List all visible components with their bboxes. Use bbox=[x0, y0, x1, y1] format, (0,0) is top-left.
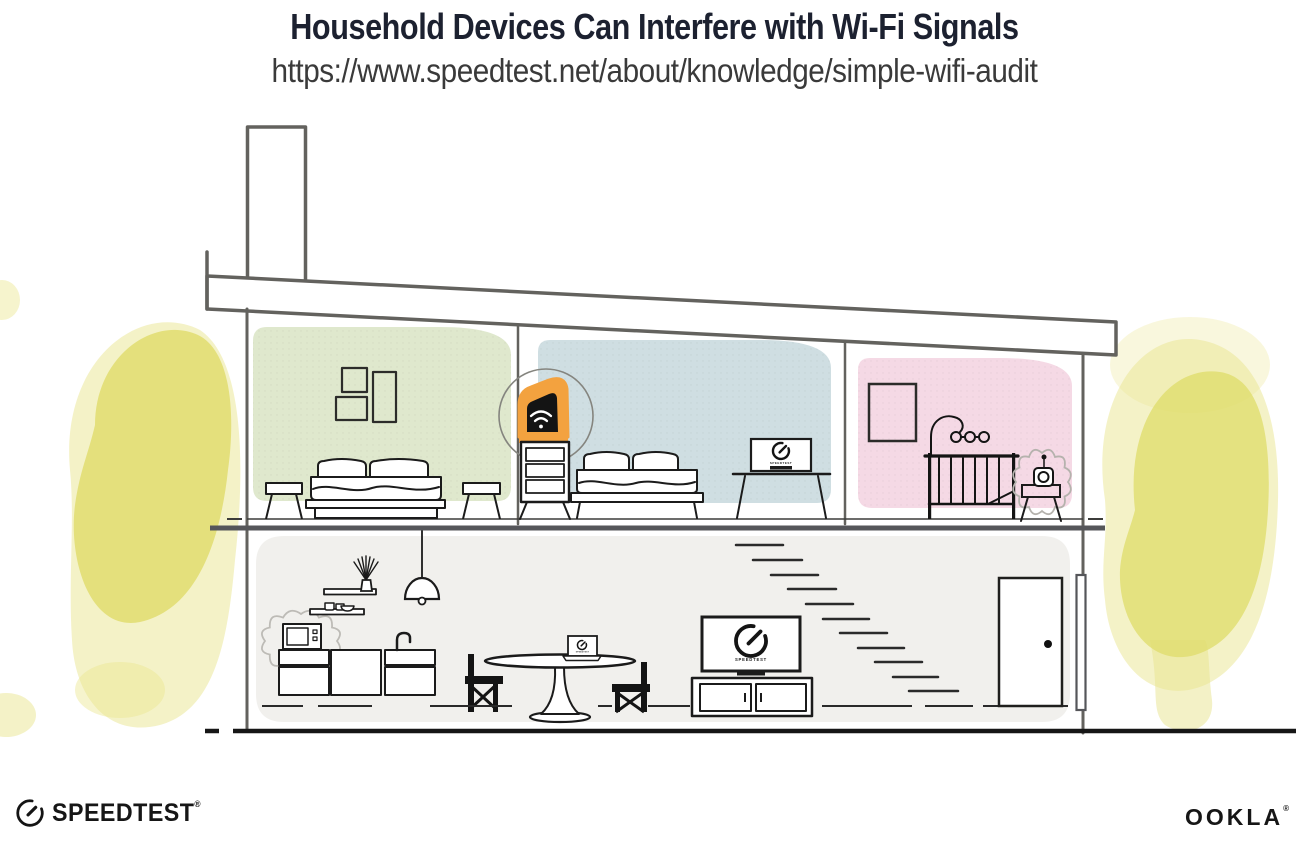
desk-computer: SPEEDTEST bbox=[751, 439, 811, 471]
downspout bbox=[1077, 575, 1086, 710]
tree-watercolor-left bbox=[0, 280, 240, 737]
infographic-page: Household Devices Can Interfere with Wi-… bbox=[0, 0, 1308, 861]
tv-console bbox=[692, 678, 812, 716]
speedtest-wordmark: SPEEDTEST® bbox=[52, 799, 201, 828]
bed-green-room bbox=[306, 459, 445, 518]
door-knob-icon bbox=[1044, 640, 1052, 648]
entry-door bbox=[999, 578, 1062, 706]
router-shelf bbox=[520, 442, 570, 519]
registered-mark: ® bbox=[194, 799, 201, 809]
speedtest-gauge-icon bbox=[14, 797, 46, 829]
kitchen-counters bbox=[279, 650, 435, 695]
ookla-logo: OOKLA® bbox=[1185, 804, 1292, 831]
microwave bbox=[283, 624, 321, 649]
television: SPEEDTEST bbox=[702, 617, 800, 676]
house-cross-section-illustration: SPEEDTEST bbox=[0, 0, 1308, 861]
tv-brand-label: SPEEDTEST bbox=[735, 657, 767, 662]
tree-watercolor-right bbox=[1102, 317, 1278, 731]
monitor-brand-label: SPEEDTEST bbox=[770, 461, 792, 465]
registered-mark: ® bbox=[1283, 804, 1292, 813]
laptop-brand-label: SPEEDTEST bbox=[576, 652, 590, 654]
ookla-wordmark: OOKLA® bbox=[1185, 804, 1292, 830]
speedtest-logo: SPEEDTEST® bbox=[14, 797, 212, 829]
laptop: SPEEDTEST bbox=[563, 636, 601, 661]
